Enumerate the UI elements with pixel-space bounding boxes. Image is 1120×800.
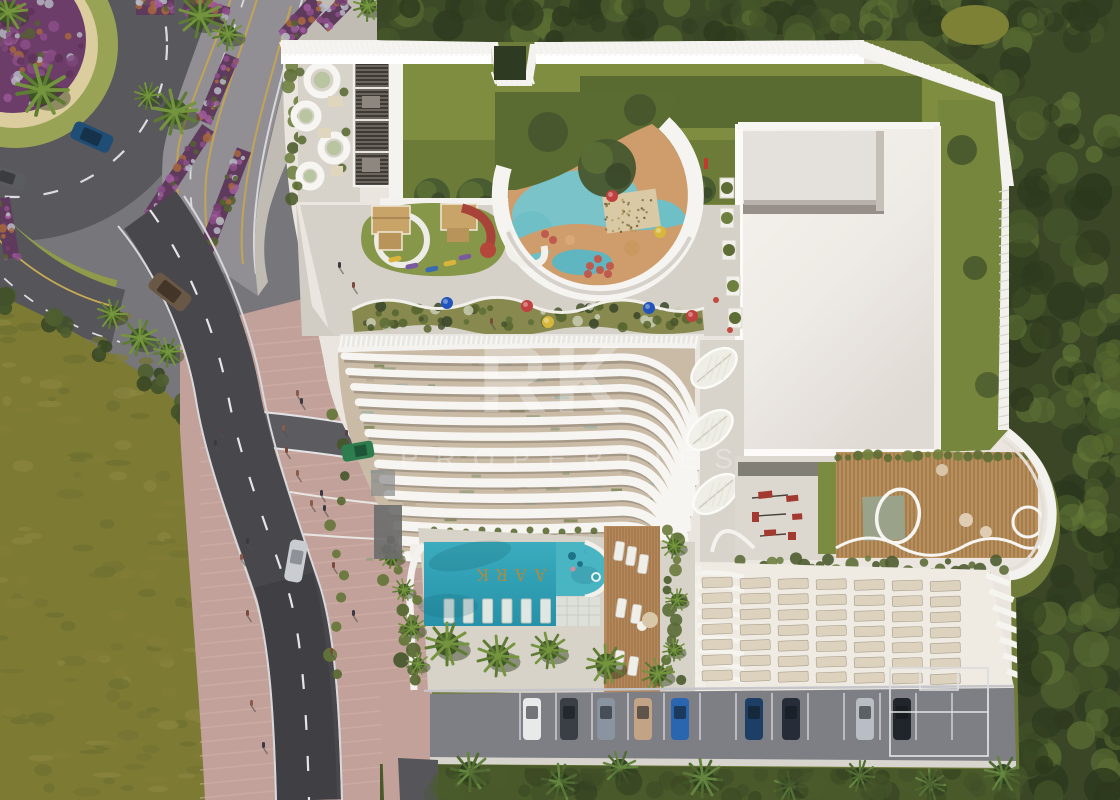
svg-text:AARK: AARK: [469, 565, 547, 585]
svg-text:PROPERTIES: PROPERTIES: [400, 443, 750, 474]
svg-text:RK: RK: [478, 326, 629, 433]
